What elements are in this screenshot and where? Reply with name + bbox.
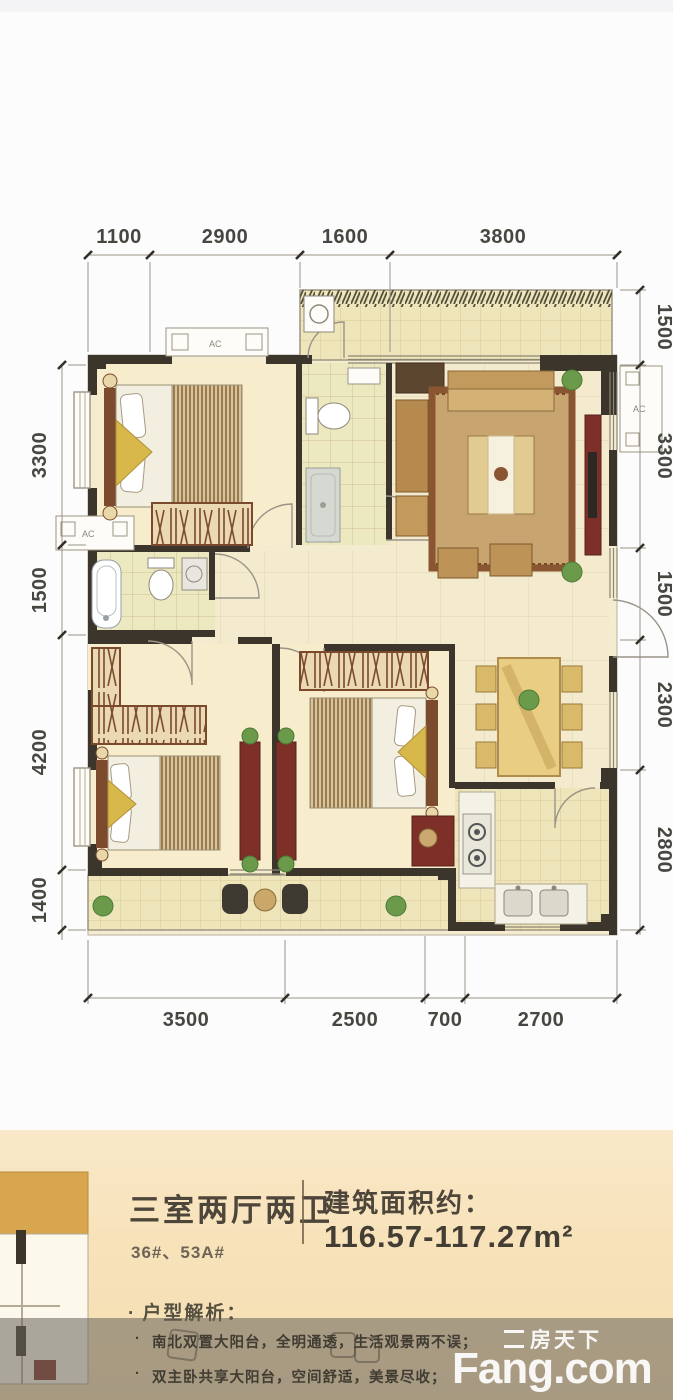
dim-right-5: 2800: [653, 827, 673, 874]
dim-top-1: 1100: [96, 226, 141, 248]
dim-left-4: 1400: [29, 877, 51, 924]
area-label: 建筑面积约：: [324, 1183, 492, 1220]
dim-left-3: 4200: [29, 729, 51, 776]
dim-right-4: 2300: [653, 682, 673, 729]
ac-label-top: AC: [209, 339, 222, 349]
area-value: 116.57-117.27m²: [324, 1219, 573, 1255]
dim-bottom-1: 3500: [163, 1009, 210, 1031]
dim-left-2: 1500: [29, 567, 51, 614]
dim-right-3: 1500: [653, 571, 673, 618]
feature-bullet-2: ·双主卧共享大阳台，空间舒适，美景尽收；: [152, 1366, 447, 1387]
bullet-marker-2: ·: [135, 1366, 141, 1382]
dim-top-3: 1600: [322, 226, 369, 248]
fang-watermark-en: Fang.com: [452, 1344, 652, 1394]
ac-label-left: AC: [82, 529, 95, 539]
dim-bottom-2: 2500: [332, 1009, 379, 1031]
dim-right-1: 1500: [653, 304, 673, 351]
title-separator: [302, 1180, 304, 1244]
dim-bottom-3: 700: [428, 1009, 463, 1031]
dim-left-1: 3300: [29, 432, 51, 479]
feature-bullet-1: ·南北双置大阳台，全明通透，生活观景两不误；: [152, 1331, 478, 1352]
dim-top-4: 3800: [480, 226, 527, 248]
dim-top-2: 2900: [202, 226, 249, 248]
floorplan-page: AC AC AC: [0, 0, 673, 1400]
building-units: 36#、53A#: [131, 1238, 225, 1263]
bullet-marker-1: ·: [135, 1331, 141, 1347]
feature-bullet-1-text: 南北双置大阳台，全明通透，生活观景两不误；: [152, 1335, 478, 1351]
feature-bullet-2-text: 双主卧共享大阳台，空间舒适，美景尽收；: [152, 1370, 447, 1386]
dim-bottom-4: 2700: [518, 1009, 565, 1031]
dim-right-2: 3300: [653, 433, 673, 480]
